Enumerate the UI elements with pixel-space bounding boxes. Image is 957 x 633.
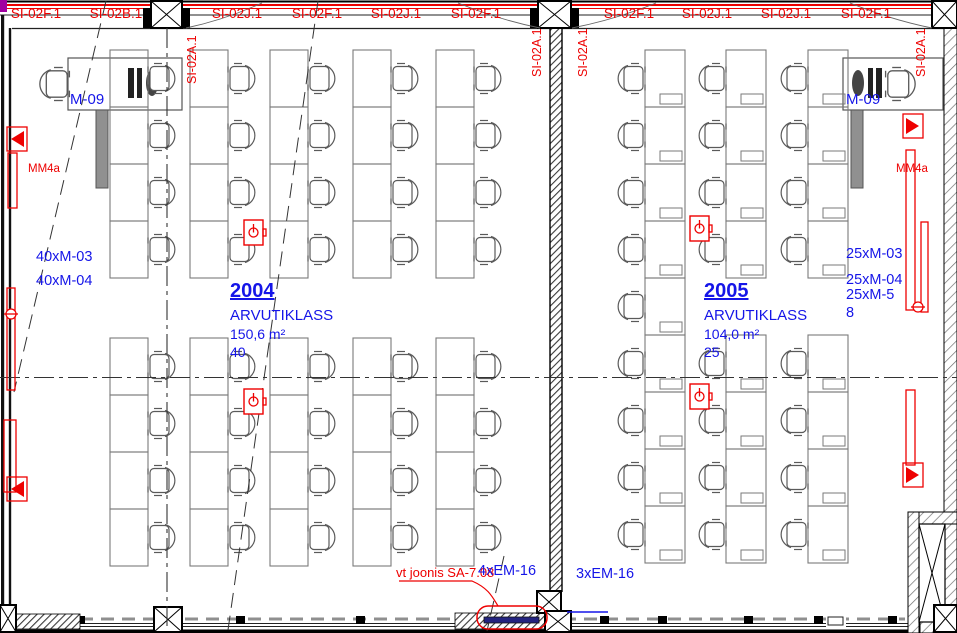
grid-label-top: SI-02F.1 <box>442 7 510 21</box>
equipment-label: 25xM-04 <box>846 273 902 288</box>
grid-label-top: SI-02J.1 <box>673 7 741 21</box>
room-seats-2004: 40 <box>230 345 246 360</box>
grid-label-top: SI-02F.1 <box>595 7 663 21</box>
room-area-2005: 104,0 m² <box>704 327 759 342</box>
grid-label-top: SI-02J.1 <box>203 7 271 21</box>
room-name-2004: ARVUTIKLASS <box>230 308 333 324</box>
grid-label-top: SI-02F.1 <box>2 7 70 21</box>
equipment-label: 40xM-03 <box>36 250 92 265</box>
room-name-2005: ARVUTIKLASS <box>704 308 807 324</box>
mm4a-label-left: MM4a <box>28 163 60 175</box>
equipment-label: 25xM-5 <box>846 288 894 303</box>
grid-label-top: SI-02J.1 <box>362 7 430 21</box>
em-label-left: 4xEM-16 <box>478 564 536 579</box>
grid-label-vertical: SI-02A.1 <box>531 28 544 77</box>
grid-label-vertical: SI-02A.1 <box>915 28 928 77</box>
equipment-label: 40xM-04 <box>36 274 92 289</box>
em-label-right: 3xEM-16 <box>576 567 634 582</box>
room-area-2004: 150,6 m² <box>230 327 285 342</box>
grid-label-vertical: SI-02A.1 <box>186 35 199 84</box>
room-number-2005: 2005 <box>704 281 749 302</box>
equipment-label: 8 <box>846 306 854 321</box>
room-number-2004: 2004 <box>230 281 275 302</box>
teacher-station-label-2005: M-09 <box>846 92 880 108</box>
grid-label-top: SI-02F.1 <box>283 7 351 21</box>
grid-label-top: SI-02J.1 <box>752 7 820 21</box>
grid-label-top: SI-02B.1 <box>82 7 150 21</box>
teacher-station-label-2004: M-09 <box>70 92 104 108</box>
grid-label-top: SI-02F.1 <box>832 7 900 21</box>
plan-linework <box>0 0 957 633</box>
grid-label-vertical: SI-02A.1 <box>577 28 590 77</box>
equipment-label: 25xM-03 <box>846 247 902 262</box>
mm4a-label-right: MM4a <box>896 163 928 175</box>
floor-plan-canvas: M-09 40xM-03 40xM-04 2004 ARVUTIKLASS 15… <box>0 0 957 633</box>
room-seats-2005: 25 <box>704 345 720 360</box>
